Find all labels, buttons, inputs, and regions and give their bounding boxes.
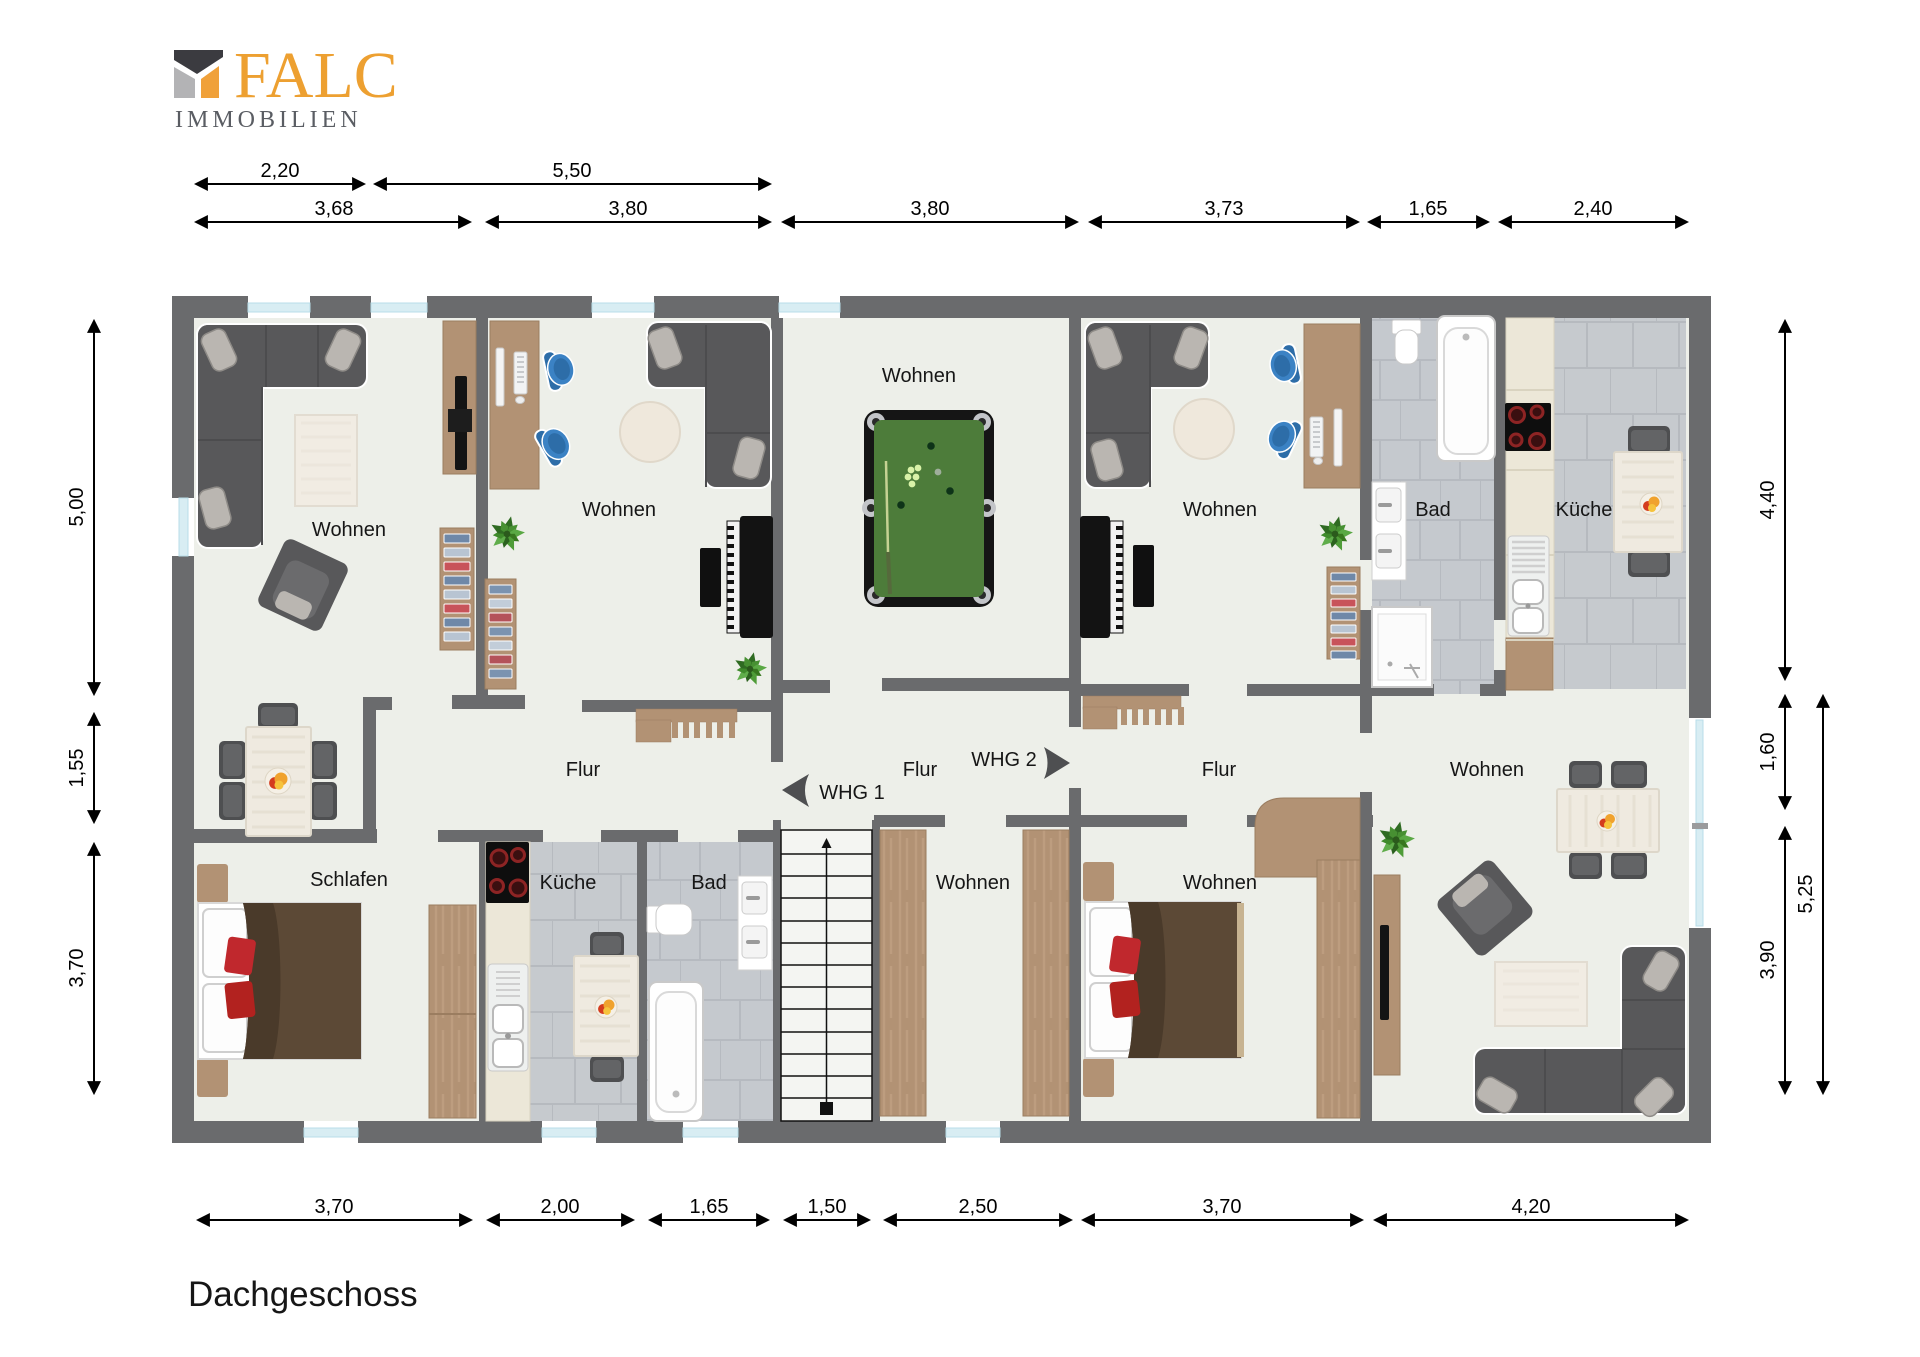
svg-text:Schlafen: Schlafen: [310, 869, 388, 891]
svg-text:Bad: Bad: [1415, 499, 1451, 521]
svg-text:Küche: Küche: [1556, 499, 1613, 521]
svg-text:3,68: 3,68: [315, 198, 354, 220]
svg-text:5,25: 5,25: [1795, 875, 1817, 914]
svg-text:WHG 2: WHG 2: [971, 749, 1037, 771]
svg-text:3,80: 3,80: [911, 198, 950, 220]
svg-text:3,80: 3,80: [609, 198, 648, 220]
svg-text:1,55: 1,55: [66, 749, 88, 788]
svg-text:2,50: 2,50: [959, 1196, 998, 1218]
svg-text:3,73: 3,73: [1205, 198, 1244, 220]
svg-text:Wohnen: Wohnen: [1183, 499, 1257, 521]
svg-text:Wohnen: Wohnen: [936, 872, 1010, 894]
svg-text:Flur: Flur: [1202, 759, 1237, 781]
svg-text:FALC: FALC: [234, 39, 398, 112]
svg-text:Wohnen: Wohnen: [1450, 759, 1524, 781]
svg-text:Wohnen: Wohnen: [582, 499, 656, 521]
svg-text:5,00: 5,00: [66, 488, 88, 527]
svg-text:1,65: 1,65: [1409, 198, 1448, 220]
svg-text:3,70: 3,70: [1203, 1196, 1242, 1218]
svg-text:3,70: 3,70: [315, 1196, 354, 1218]
svg-text:1,50: 1,50: [808, 1196, 847, 1218]
svg-text:Bad: Bad: [691, 872, 727, 894]
svg-text:IMMOBILIEN: IMMOBILIEN: [175, 107, 362, 133]
svg-text:2,40: 2,40: [1574, 198, 1613, 220]
svg-text:2,00: 2,00: [541, 1196, 580, 1218]
svg-text:Flur: Flur: [566, 759, 601, 781]
svg-text:4,20: 4,20: [1512, 1196, 1551, 1218]
svg-text:Dachgeschoss: Dachgeschoss: [188, 1275, 418, 1314]
svg-text:WHG 1: WHG 1: [819, 782, 885, 804]
svg-text:2,20: 2,20: [261, 160, 300, 182]
svg-text:Wohnen: Wohnen: [882, 365, 956, 387]
svg-text:3,70: 3,70: [66, 949, 88, 988]
svg-text:1,60: 1,60: [1757, 733, 1779, 772]
svg-text:Küche: Küche: [540, 872, 597, 894]
svg-text:4,40: 4,40: [1757, 481, 1779, 520]
svg-text:Wohnen: Wohnen: [312, 519, 386, 541]
svg-text:Flur: Flur: [903, 759, 938, 781]
svg-text:Wohnen: Wohnen: [1183, 872, 1257, 894]
svg-text:3,90: 3,90: [1757, 941, 1779, 980]
svg-text:5,50: 5,50: [553, 160, 592, 182]
svg-text:1,65: 1,65: [690, 1196, 729, 1218]
